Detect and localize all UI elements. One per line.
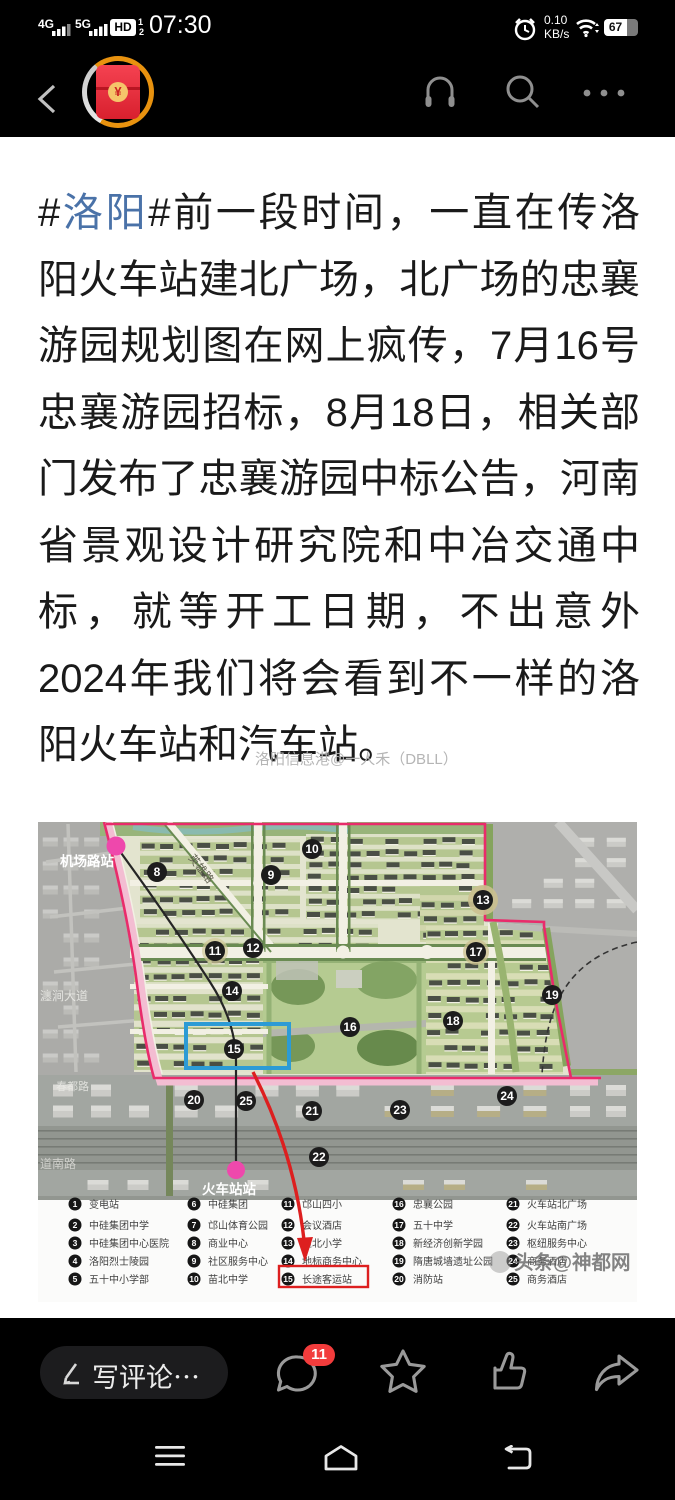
svg-text:火车站南广场: 火车站南广场 — [527, 1219, 587, 1232]
svg-text:商务酒店: 商务酒店 — [527, 1273, 567, 1286]
svg-text:苗北中学: 苗北中学 — [208, 1273, 248, 1286]
svg-text:21: 21 — [508, 1199, 518, 1209]
svg-text:新经济创新学园: 新经济创新学园 — [413, 1237, 483, 1250]
svg-text:五十中小学部: 五十中小学部 — [89, 1273, 149, 1286]
svg-text:社区服务中心: 社区服务中心 — [208, 1255, 268, 1268]
svg-text:中硅集团: 中硅集团 — [208, 1198, 248, 1211]
svg-text:7: 7 — [192, 1220, 197, 1230]
svg-text:15: 15 — [283, 1274, 293, 1284]
svg-text:22: 22 — [508, 1220, 518, 1230]
svg-text:中硅集团中学: 中硅集团中学 — [89, 1219, 149, 1232]
svg-text:枢纽服务中心: 枢纽服务中心 — [527, 1237, 587, 1250]
svg-text:9: 9 — [192, 1256, 197, 1266]
svg-text:23: 23 — [508, 1238, 518, 1248]
svg-text:长途客运站: 长途客运站 — [302, 1273, 352, 1286]
svg-text:火车站北广场: 火车站北广场 — [527, 1198, 587, 1211]
svg-text:变电站: 变电站 — [89, 1198, 119, 1211]
svg-text:中硅集团中心医院: 中硅集团中心医院 — [89, 1237, 169, 1250]
svg-text:商业中心: 商业中心 — [208, 1237, 248, 1250]
svg-text:五十中学: 五十中学 — [413, 1219, 453, 1232]
svg-text:忠襄公园: 忠襄公园 — [413, 1198, 453, 1211]
svg-text:洛阳烈士陵园: 洛阳烈士陵园 — [89, 1255, 149, 1268]
svg-text:邙山体育公园: 邙山体育公园 — [208, 1219, 268, 1232]
svg-text:消防站: 消防站 — [413, 1273, 443, 1286]
svg-text:4: 4 — [73, 1256, 78, 1266]
svg-text:6: 6 — [192, 1199, 197, 1209]
svg-text:13: 13 — [283, 1238, 293, 1248]
svg-text:19: 19 — [394, 1256, 404, 1266]
svg-text:16: 16 — [394, 1199, 404, 1209]
svg-text:邙山四小: 邙山四小 — [302, 1199, 342, 1211]
svg-text:11: 11 — [284, 1199, 293, 1209]
svg-text:隋唐城墙遗址公园: 隋唐城墙遗址公园 — [413, 1255, 493, 1268]
svg-text:2: 2 — [73, 1220, 78, 1230]
svg-text:17: 17 — [394, 1220, 404, 1230]
svg-text:5: 5 — [73, 1274, 78, 1284]
svg-text:8: 8 — [192, 1238, 197, 1248]
svg-text:1: 1 — [73, 1199, 78, 1209]
svg-text:14: 14 — [283, 1256, 293, 1266]
svg-text:25: 25 — [508, 1274, 518, 1284]
svg-text:20: 20 — [394, 1274, 404, 1284]
svg-text:18: 18 — [394, 1238, 404, 1248]
svg-text:10: 10 — [189, 1274, 199, 1284]
svg-text:3: 3 — [73, 1238, 78, 1248]
svg-text:12: 12 — [283, 1220, 293, 1230]
svg-text:头条@神都网: 头条@神都网 — [514, 1251, 631, 1274]
svg-text:会议酒店: 会议酒店 — [302, 1219, 342, 1232]
